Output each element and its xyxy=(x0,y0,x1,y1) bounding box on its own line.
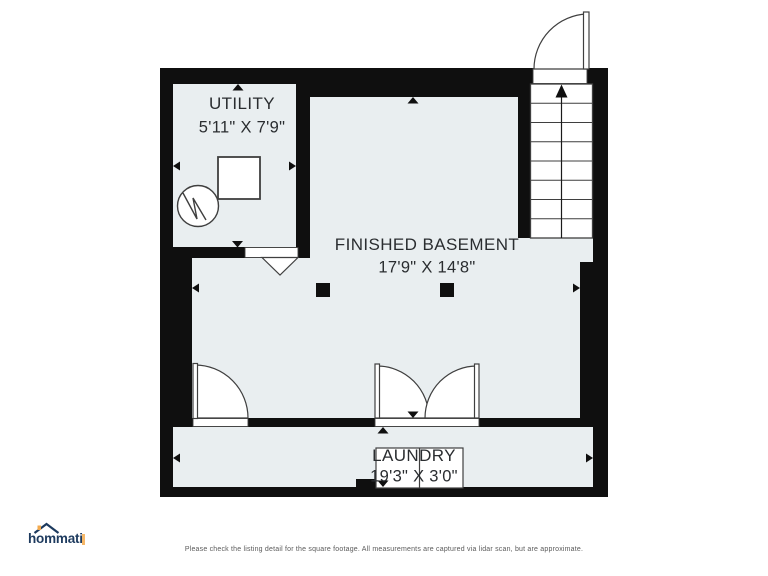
wall-left xyxy=(160,68,173,497)
wall-stairwell-left xyxy=(518,68,530,238)
entry-door xyxy=(534,12,589,69)
floor-plan-page: UTILITY 5'11" X 7'9" FINISHED BASEMENT 1… xyxy=(0,0,768,576)
entry-door-swing-arc xyxy=(534,14,587,69)
double-door-threshold xyxy=(375,419,479,427)
floor-plan-drawing xyxy=(0,0,768,576)
footer-disclaimer: Please check the listing detail for the … xyxy=(0,546,768,553)
laundry-room-dimensions: 19'3" X 3'0" xyxy=(370,468,458,487)
support-column-icon xyxy=(316,283,330,297)
logo-accent-bar xyxy=(82,534,85,545)
wall-right xyxy=(593,68,608,497)
logo-wordmark: hommati xyxy=(28,531,83,546)
stair-door-threshold xyxy=(533,69,587,84)
finished-basement-dimensions: 17'9" X 14'8" xyxy=(378,259,475,278)
wall-utility-right xyxy=(296,84,310,258)
wall-right-thick xyxy=(580,262,593,427)
support-column-icon xyxy=(440,283,454,297)
wall-left-thick xyxy=(173,258,192,418)
utility-room-dimensions: 5'11" X 7'9" xyxy=(199,119,285,138)
utility-room-label: UTILITY xyxy=(209,94,275,114)
furnace-icon xyxy=(218,157,260,199)
utility-opening-threshold xyxy=(245,248,298,258)
double-door-right-leaf xyxy=(475,364,480,418)
entry-door-leaf xyxy=(584,12,590,69)
single-door-leaf xyxy=(193,364,198,419)
basement-floor-upper xyxy=(310,97,518,258)
double-door-left-leaf xyxy=(375,364,380,418)
wall-top-thick xyxy=(296,84,530,97)
laundry-room-label: LAUNDRY xyxy=(372,446,456,466)
finished-basement-label: FINISHED BASEMENT xyxy=(335,235,519,255)
single-door-threshold xyxy=(193,419,248,427)
staircase xyxy=(531,84,593,238)
